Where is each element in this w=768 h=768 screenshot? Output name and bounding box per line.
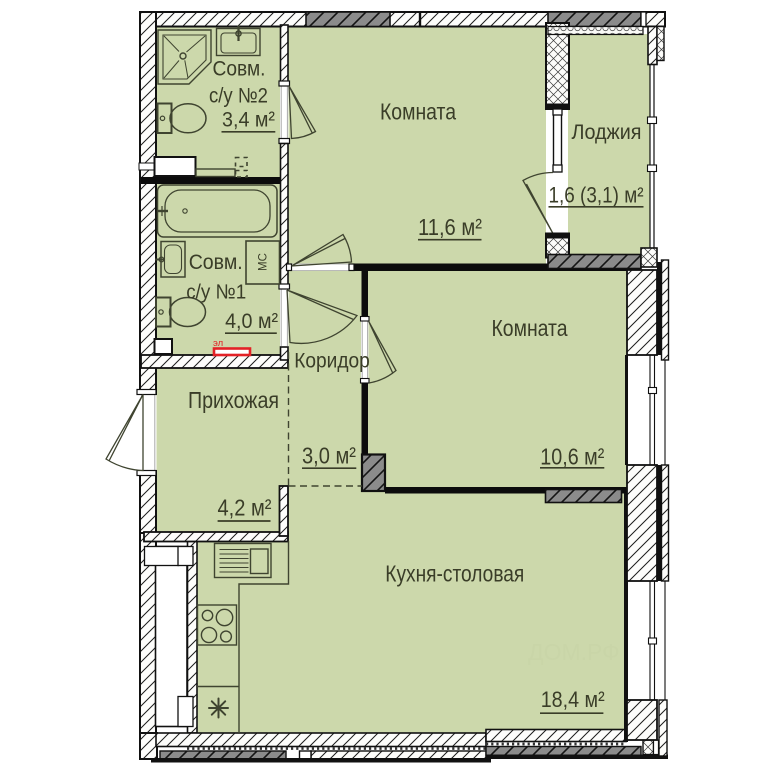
svg-text:4,2 м²: 4,2 м²: [218, 494, 272, 520]
svg-text:Комната: Комната: [492, 315, 569, 341]
svg-text:4,0 м²: 4,0 м²: [225, 310, 278, 333]
svg-text:Совм.: Совм.: [189, 251, 243, 274]
svg-text:с/у №1: с/у №1: [186, 281, 246, 304]
svg-text:с/у №2: с/у №2: [209, 84, 268, 107]
svg-text:Совм.: Совм.: [213, 57, 266, 80]
svg-text:1,6 (3,1) м²: 1,6 (3,1) м²: [549, 182, 644, 207]
svg-text:3,4 м²: 3,4 м²: [222, 109, 275, 132]
svg-text:ДОМ.РФ: ДОМ.РФ: [528, 639, 620, 665]
svg-text:3,0 м²: 3,0 м²: [302, 443, 356, 469]
svg-text:Лоджия: Лоджия: [572, 120, 642, 144]
svg-text:Прихожая: Прихожая: [188, 387, 279, 413]
svg-text:Коридор: Коридор: [294, 350, 370, 373]
svg-text:МС: МС: [258, 253, 270, 271]
svg-text:Кухня-столовая: Кухня-столовая: [385, 560, 524, 586]
svg-text:10,6 м²: 10,6 м²: [540, 444, 604, 470]
svg-text:11,6 м²: 11,6 м²: [418, 214, 482, 240]
svg-text:Комната: Комната: [380, 98, 457, 124]
svg-text:18,4 м²: 18,4 м²: [541, 687, 605, 712]
